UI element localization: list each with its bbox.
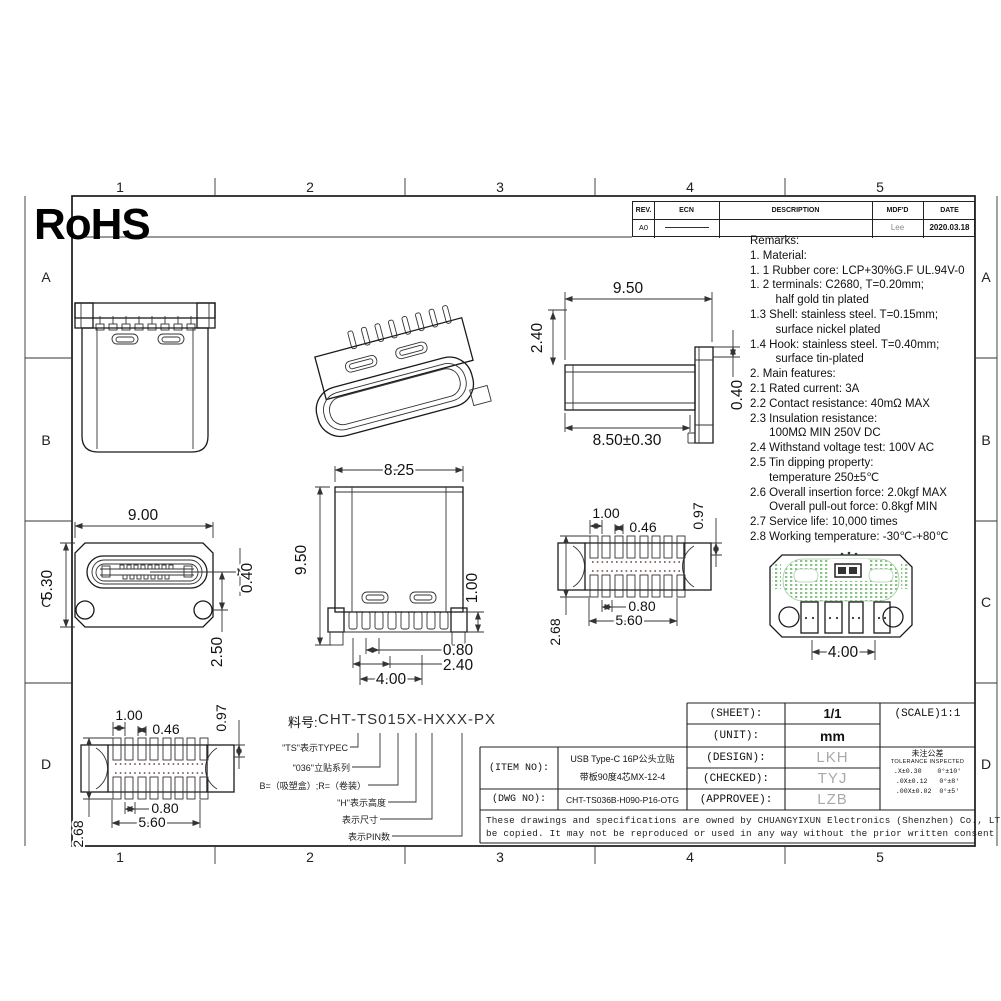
design-value: LKH [785,747,880,768]
dwg-no-label: (DWG NO): [480,789,558,810]
dwg-no-value: CHT-TS036B-H090-P16-OTG [558,789,687,810]
tolerance-title-en: TOLERANCE INSPECTED [880,759,975,765]
checked-label: (CHECKED): [687,768,785,789]
approvee-value: LZB [785,789,880,810]
tolerance-title-cn: 未注公差 [880,748,975,759]
tolerance-row-3: .00X±0.02 0°±5′ [880,788,975,795]
copyright-line-2: be copied. It may not be reproduced or u… [486,828,1001,839]
tolerance-row-2: .0X±0.12 0°±8′ [880,778,975,785]
drawing-sheet: 9.50 2.40 8.50±0.30 0.40 9.00 [0,0,1001,1001]
copyright-line-1: These drawings and specifications are ow… [486,815,1001,826]
tolerance-row-1: .X±0.30 0°±10′ [880,768,975,775]
design-label: (DESIGN): [687,747,785,768]
title-block-lines [0,0,1001,1001]
scale-label: (SCALE)1:1 [880,703,975,724]
checked-value: TYJ [785,768,880,789]
sheet-label: (SHEET): [687,703,785,724]
item-no-line1: USB Type-C 16P公头立贴 [558,749,687,767]
unit-value: mm [785,724,880,747]
tolerance-box: 未注公差 TOLERANCE INSPECTED .X±0.30 0°±10′ … [880,748,975,795]
sheet-value: 1/1 [785,703,880,724]
approvee-label: (APPROVEE): [687,789,785,810]
item-no-label: (ITEM NO): [480,747,558,789]
item-no-line2: 带板90度4芯MX-12-4 [558,767,687,785]
unit-label: (UNIT): [687,724,785,747]
